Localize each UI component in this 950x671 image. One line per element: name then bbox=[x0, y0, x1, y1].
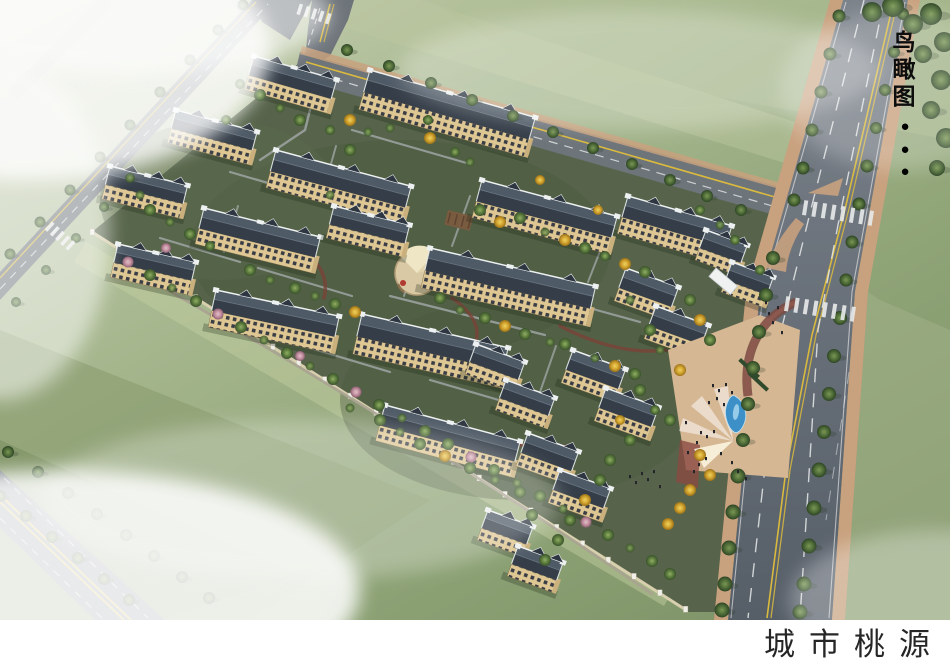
rendering-svg bbox=[0, 0, 950, 620]
architectural-rendering-page: { "annotation": { "view_label": "鸟瞰图", "… bbox=[0, 0, 950, 671]
bullet-dots: ● ● ● bbox=[897, 116, 913, 184]
bullet-dot: ● bbox=[900, 116, 909, 139]
caption-strip: 城市桃源 bbox=[0, 620, 950, 671]
view-type-label: 鸟瞰图 bbox=[889, 30, 915, 111]
birdseye-rendering: 鸟瞰图 ● ● ● bbox=[0, 0, 950, 620]
bullet-dot: ● bbox=[900, 161, 909, 184]
bullet-dot: ● bbox=[900, 139, 909, 162]
project-name: 城市桃源 bbox=[764, 619, 944, 664]
